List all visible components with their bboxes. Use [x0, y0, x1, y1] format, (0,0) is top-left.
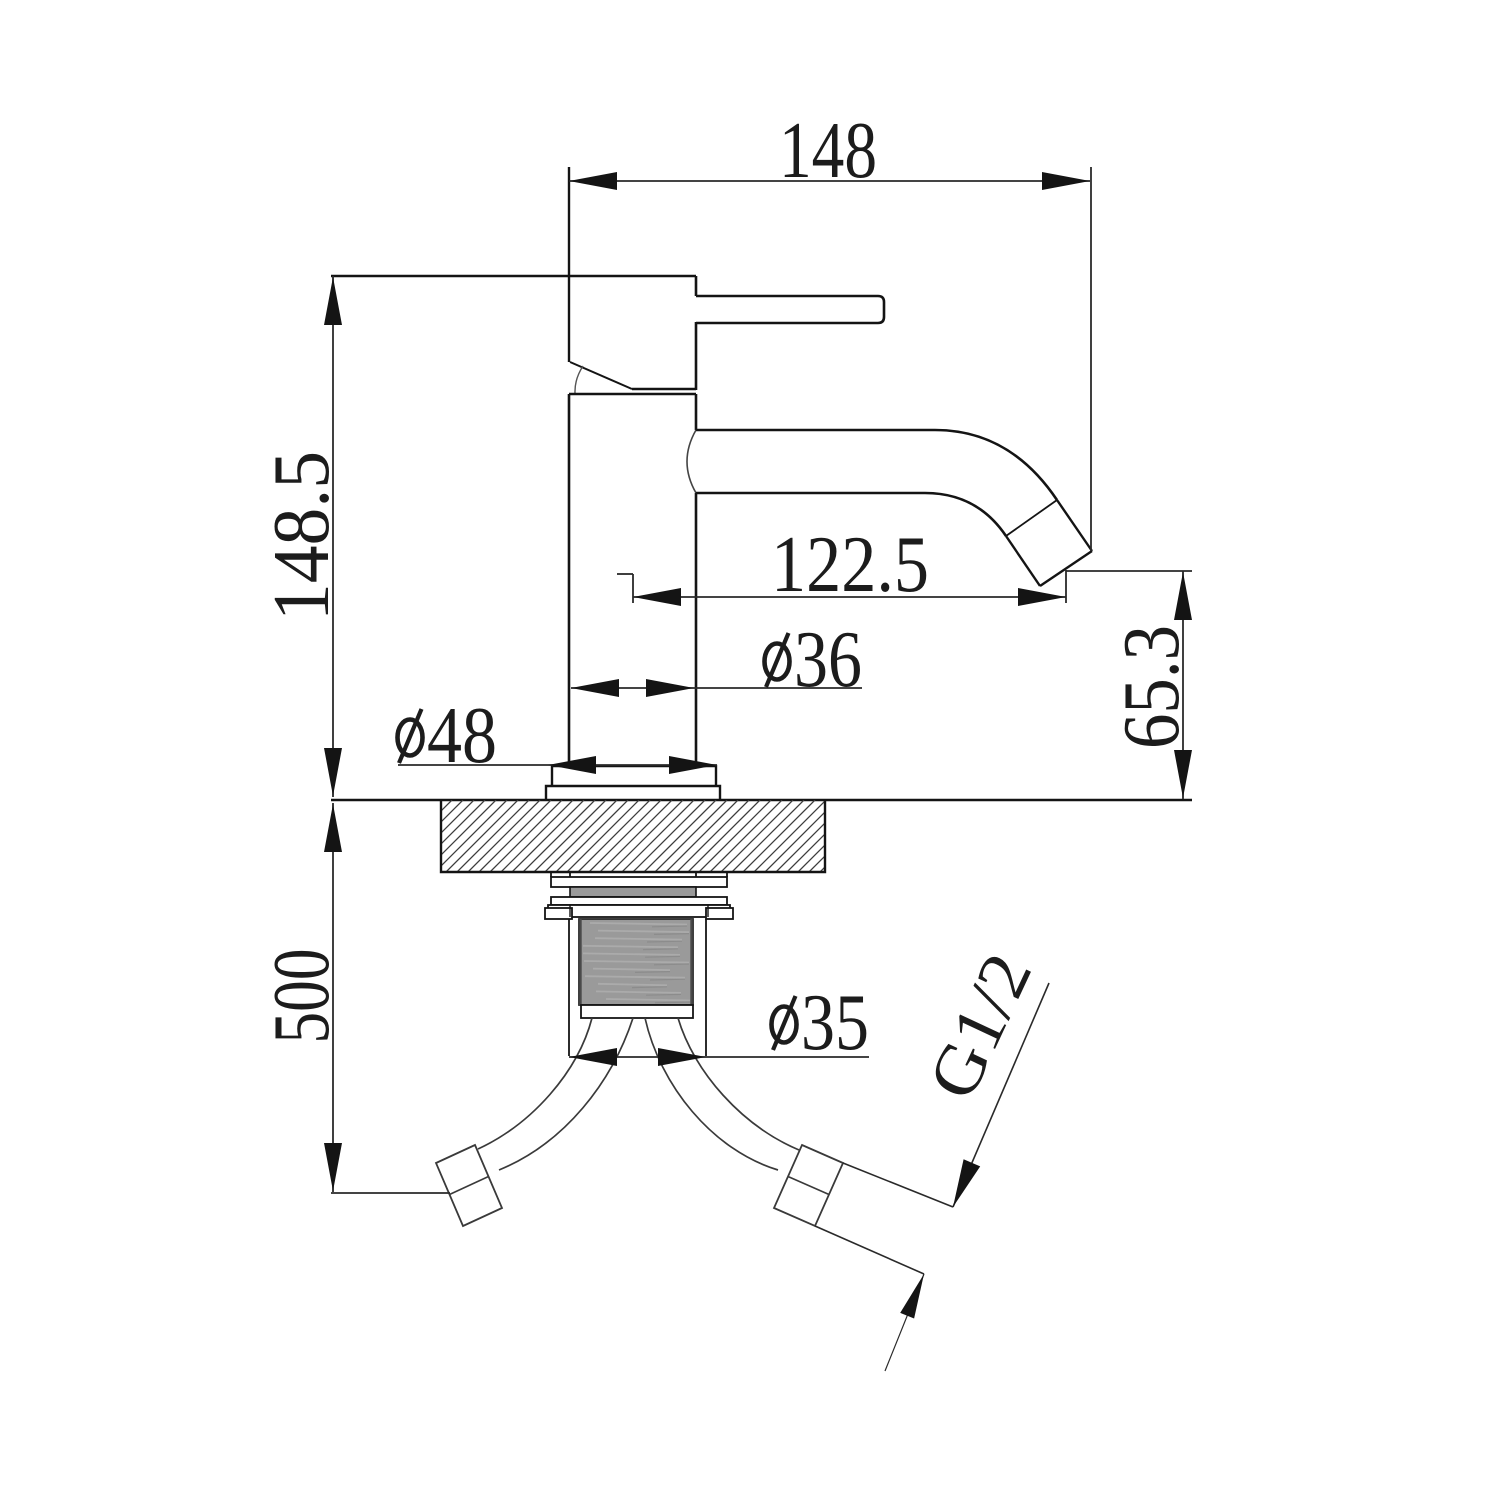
svg-text:35: 35 — [801, 979, 869, 1067]
svg-text:65.3: 65.3 — [1108, 625, 1196, 749]
svg-text:148: 148 — [779, 107, 877, 195]
svg-text:122.5: 122.5 — [771, 521, 929, 609]
svg-text:48: 48 — [427, 692, 497, 780]
svg-text:148.5: 148.5 — [258, 451, 346, 621]
svg-text:36: 36 — [794, 616, 862, 704]
svg-text:500: 500 — [258, 949, 346, 1044]
